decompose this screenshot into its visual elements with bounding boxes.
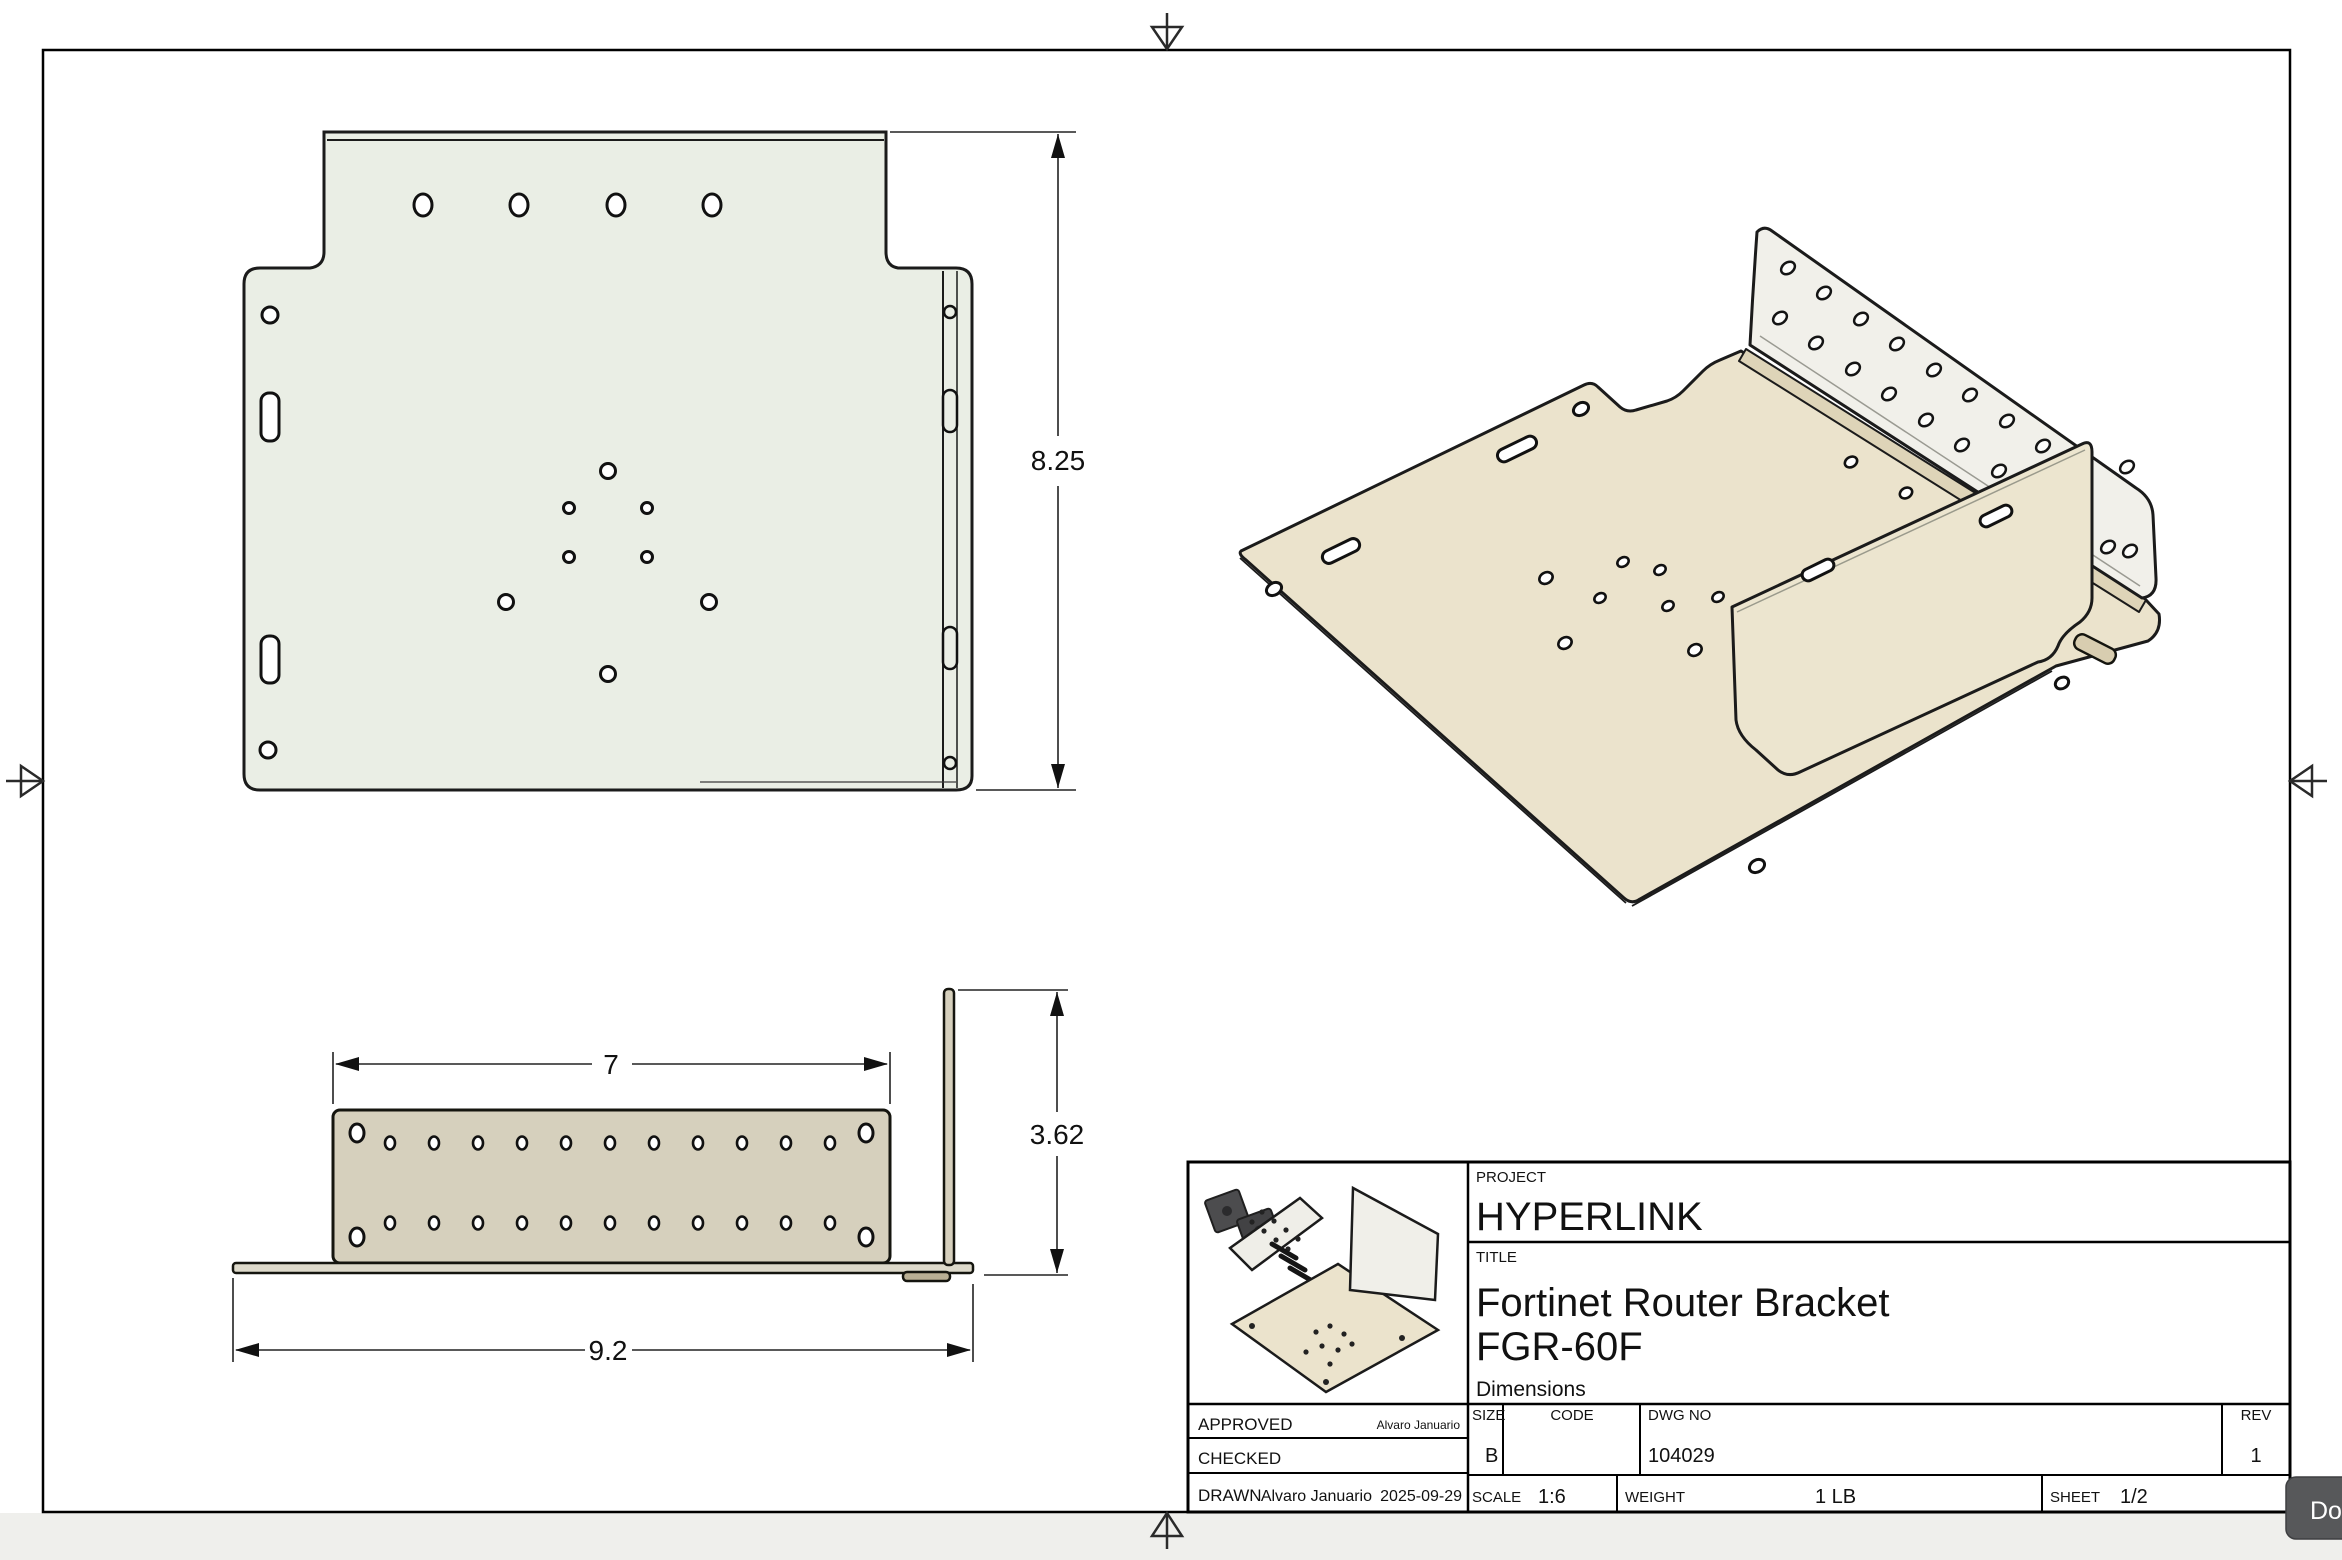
download-button[interactable]: Do bbox=[2286, 1477, 2342, 1539]
code-label: CODE bbox=[1550, 1407, 1593, 1424]
scale-value: 1:6 bbox=[1538, 1486, 1566, 1508]
download-button-label: Do bbox=[2310, 1497, 2342, 1525]
front-view-overall-width-dim-text: 9.2 bbox=[589, 1335, 628, 1366]
dwg-no-value: 104029 bbox=[1648, 1445, 1715, 1467]
project-value: HYPERLINK bbox=[1476, 1195, 1703, 1239]
weight-value: 1 LB bbox=[1815, 1486, 1856, 1508]
front-view-width-dim-text: 7 bbox=[603, 1049, 619, 1080]
checked-label: CHECKED bbox=[1198, 1449, 1281, 1468]
dwg-no-label: DWG NO bbox=[1648, 1407, 1711, 1424]
size-value: B bbox=[1485, 1445, 1498, 1467]
rev-value: 1 bbox=[2250, 1445, 2261, 1467]
thumb-block-1-hole bbox=[1222, 1206, 1232, 1216]
drawn-date: 2025-09-29 bbox=[1380, 1488, 1462, 1505]
top-view-plate-outline bbox=[244, 132, 972, 790]
title-line3: Dimensions bbox=[1476, 1378, 1586, 1401]
front-view-foot bbox=[903, 1272, 950, 1281]
top-view-height-dim-text: 8.25 bbox=[1031, 445, 1086, 476]
front-view-base bbox=[233, 1263, 973, 1273]
project-label: PROJECT bbox=[1476, 1169, 1546, 1186]
weight-label: WEIGHT bbox=[1625, 1489, 1685, 1506]
sheet-label: SHEET bbox=[2050, 1489, 2100, 1506]
drawn-label: DRAWN bbox=[1198, 1486, 1262, 1505]
drawn-by: Alvaro Januario bbox=[1261, 1488, 1372, 1505]
approved-by: Alvaro Januario bbox=[1377, 1418, 1461, 1432]
front-view-flange bbox=[944, 989, 954, 1265]
front-view-panel bbox=[333, 1110, 890, 1263]
rev-label: REV bbox=[2241, 1407, 2272, 1424]
approved-label: APPROVED bbox=[1198, 1415, 1292, 1434]
sheet-value: 1/2 bbox=[2120, 1486, 2148, 1508]
size-label: SIZE bbox=[1472, 1407, 1505, 1424]
scale-label: SCALE bbox=[1472, 1489, 1521, 1506]
title-label: TITLE bbox=[1476, 1249, 1517, 1266]
title-block: PROJECT HYPERLINK TITLE Fortinet Router … bbox=[1188, 1162, 2290, 1512]
front-view-height-dim-text: 3.62 bbox=[1030, 1119, 1085, 1150]
title-line1: Fortinet Router Bracket bbox=[1476, 1281, 1890, 1325]
title-line2: FGR-60F bbox=[1476, 1325, 1643, 1369]
